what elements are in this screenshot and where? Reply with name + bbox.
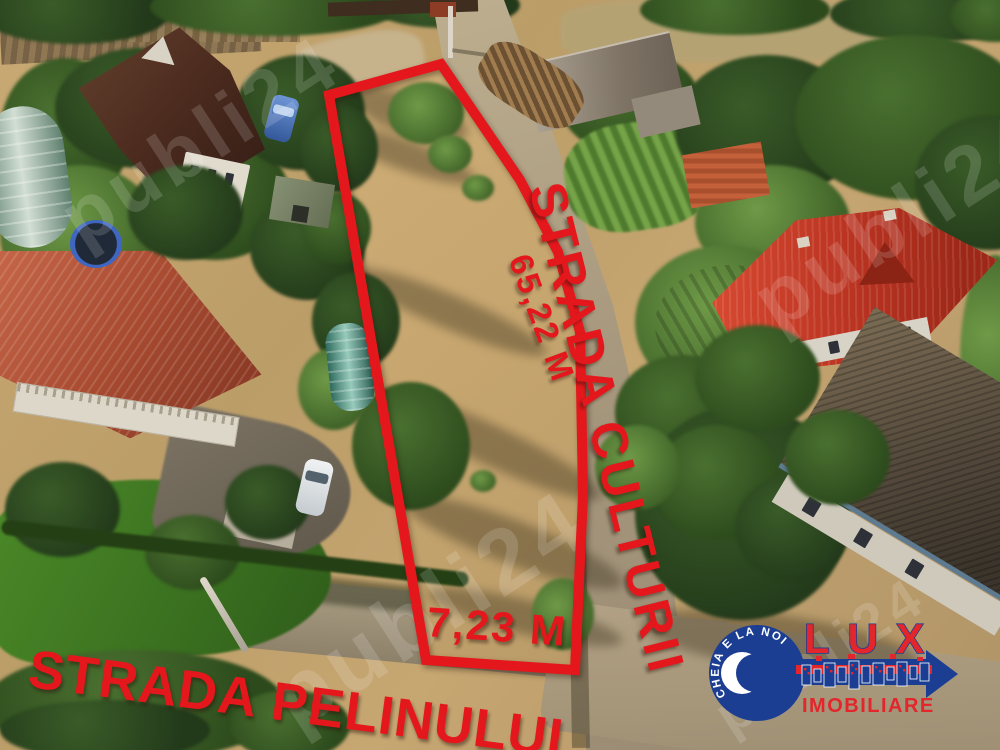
tree: [785, 410, 890, 505]
dimension-label-width: 7,23 M: [426, 601, 569, 653]
tree: [695, 325, 820, 430]
key-head-cutout-cover: [736, 654, 774, 692]
window: [828, 340, 840, 354]
windshield: [305, 470, 330, 485]
aerial-photo: STRADA CULTURII 65,22 M 7,23 M STRADA PE…: [0, 0, 1000, 750]
bush: [470, 470, 496, 492]
agency-logo: LUX IMOBILIARE CHEIA E LA NOI: [692, 608, 972, 748]
logo-subtitle: IMOBILIARE: [802, 695, 935, 717]
shed-green: [269, 176, 335, 229]
shed-door: [291, 205, 309, 223]
house-mid-left: [0, 225, 278, 457]
bush: [462, 175, 494, 201]
bush: [428, 135, 472, 173]
window: [853, 527, 873, 548]
logo-name: LUX: [804, 615, 942, 662]
